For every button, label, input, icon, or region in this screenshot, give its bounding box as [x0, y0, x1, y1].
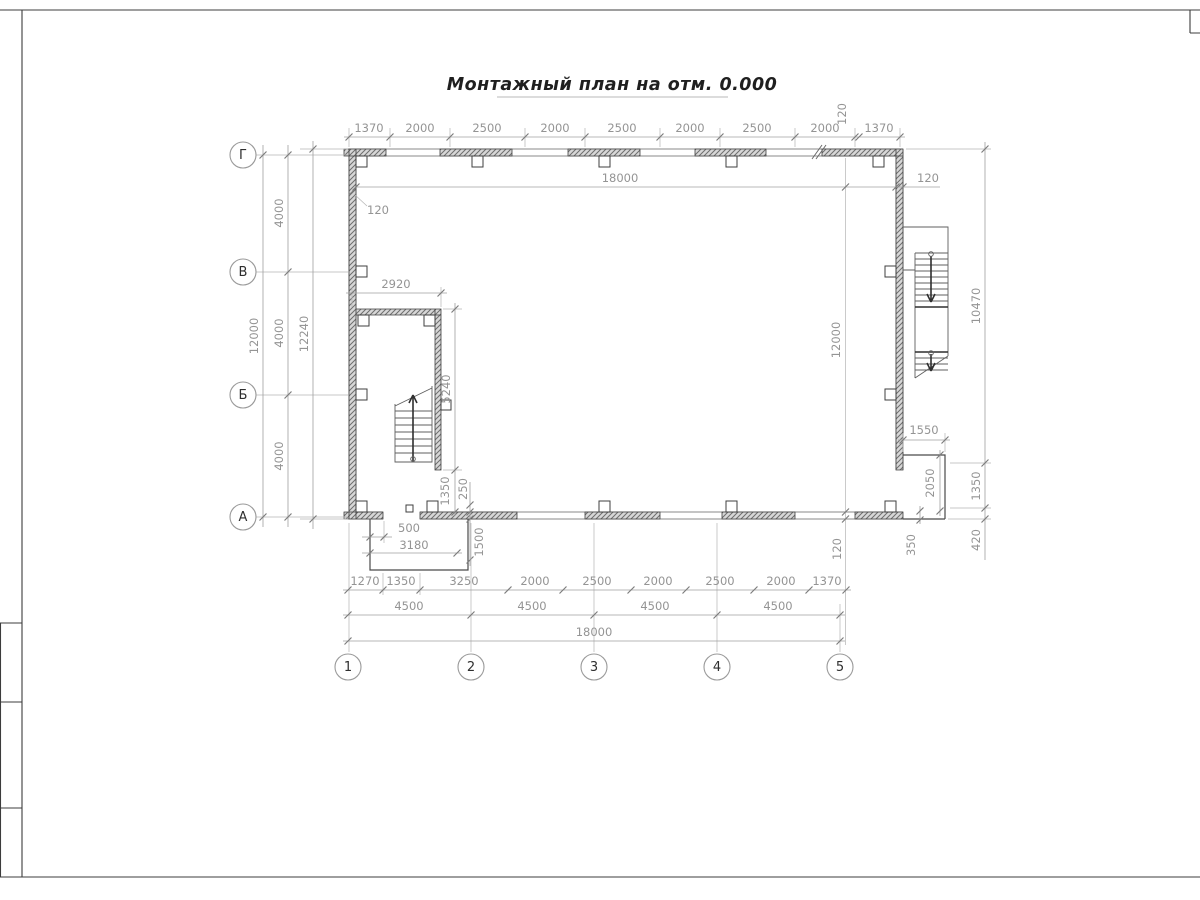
stair-left-direction-arrow — [409, 395, 417, 461]
frame-border — [0, 10, 1200, 877]
axis-col-1-label: 1 — [344, 660, 352, 675]
wall-panels — [344, 149, 903, 519]
dim-porch-left-500: 500 — [398, 521, 420, 535]
dim-room-250: 250 — [456, 478, 470, 500]
stair-left — [395, 386, 432, 462]
dim-bottom-7: 2500 — [705, 574, 734, 588]
dim-bottom-4500-4: 4500 — [763, 599, 792, 613]
stair-right — [903, 227, 948, 378]
dim-top-9: 1370 — [864, 121, 893, 135]
axis-col-2-label: 2 — [467, 660, 475, 675]
dim-top-5: 2500 — [607, 121, 636, 135]
dim-porch-left-3180: 3180 — [399, 538, 428, 552]
axis-row-a-label: А — [239, 510, 248, 525]
dim-room-1350: 1350 — [438, 476, 452, 505]
dim-top-3: 2500 — [472, 121, 501, 135]
dim-right-420: 420 — [969, 529, 983, 551]
dim-bottom-3: 3250 — [449, 574, 478, 588]
axis-col-3-label: 3 — [590, 660, 598, 675]
wall-outlines — [349, 149, 903, 519]
title-block: Монтажный план на отм. 0.000 — [447, 75, 778, 97]
dim-bottom-6: 2000 — [643, 574, 672, 588]
drawing-sheet: Монтажный план на отм. 0.000 1370 — [0, 0, 1200, 900]
axis-col-4-label: 4 — [713, 660, 721, 675]
dim-corner-120: 120 — [367, 203, 389, 217]
dim-bottom: 1270 1350 3250 2000 2500 2000 2500 2000 … — [343, 158, 851, 652]
dim-bottom-9: 1370 — [812, 574, 841, 588]
axis-row-g-label: Г — [239, 148, 247, 163]
dim-right-1550: 1550 — [909, 423, 938, 437]
dim-bottom-18000: 18000 — [576, 625, 613, 639]
dim-right-extensions — [903, 149, 991, 519]
dim-bottom-1: 1270 — [350, 574, 379, 588]
dim-left-4000-1: 4000 — [272, 198, 286, 227]
dim-bottom-2: 1350 — [386, 574, 415, 588]
axis-col-5-label: 5 — [836, 660, 844, 675]
dim-top-6: 2000 — [675, 121, 704, 135]
drawing-title: Монтажный план на отм. 0.000 — [447, 75, 778, 95]
dim-top-4: 2000 — [540, 121, 569, 135]
axis-row-v-label: В — [239, 265, 248, 280]
sheet-frame — [0, 10, 1200, 877]
axis-row-b-label: Б — [239, 388, 248, 403]
stair-right-direction-arrows — [927, 256, 935, 371]
dim-bottom-8: 2000 — [766, 574, 795, 588]
dim-right-12000: 12000 — [829, 322, 843, 359]
dim-left-12240: 12240 — [297, 316, 311, 353]
dim-top-chain: 1370 2000 2500 2000 2500 2000 2500 2000 … — [344, 103, 905, 147]
dim-right-1350: 1350 — [969, 471, 983, 500]
dim-bottom-4500-2: 4500 — [517, 599, 546, 613]
dim-top-wall-120: 120 — [917, 171, 939, 185]
dim-right-350: 350 — [904, 534, 918, 556]
dim-top-total: 18000 120 120 — [349, 171, 941, 217]
dim-left-4000-2: 4000 — [272, 318, 286, 347]
dim-bottom-5: 2500 — [582, 574, 611, 588]
dim-left-4000-3: 4000 — [272, 441, 286, 470]
dim-top-total-18000: 18000 — [602, 171, 639, 185]
axis-cols: 1 2 3 4 5 — [335, 654, 853, 680]
dim-right-120: 120 — [830, 538, 844, 560]
dim-top-7: 2500 — [742, 121, 771, 135]
dim-bottom-4500-1: 4500 — [394, 599, 423, 613]
dim-left: 12000 4000 4000 4000 12240 — [247, 141, 348, 529]
stair-right-start-mark-upper — [929, 252, 934, 257]
dim-porch-left-1500: 1500 — [472, 527, 486, 556]
building — [344, 145, 903, 519]
dim-bottom-4: 2000 — [520, 574, 549, 588]
dim-right: 1550 2050 350 120 12000 10470 1350 420 — [829, 142, 991, 560]
dim-top-1: 1370 — [354, 121, 383, 135]
dim-room-5240: 5240 — [439, 374, 453, 403]
dim-bottom-4500-3: 4500 — [640, 599, 669, 613]
floor-plan-canvas: Монтажный план на отм. 0.000 1370 — [0, 0, 1200, 900]
dim-top-2: 2000 — [405, 121, 434, 135]
dim-right-10470: 10470 — [969, 288, 983, 325]
dim-top-offset-120: 120 — [835, 103, 849, 125]
dim-left-12000: 12000 — [247, 318, 261, 355]
stair-right-landing-edges — [915, 307, 948, 352]
dim-room-2920: 2920 — [381, 277, 410, 291]
stair-right-outline — [903, 227, 948, 378]
dim-right-2050: 2050 — [923, 468, 937, 497]
